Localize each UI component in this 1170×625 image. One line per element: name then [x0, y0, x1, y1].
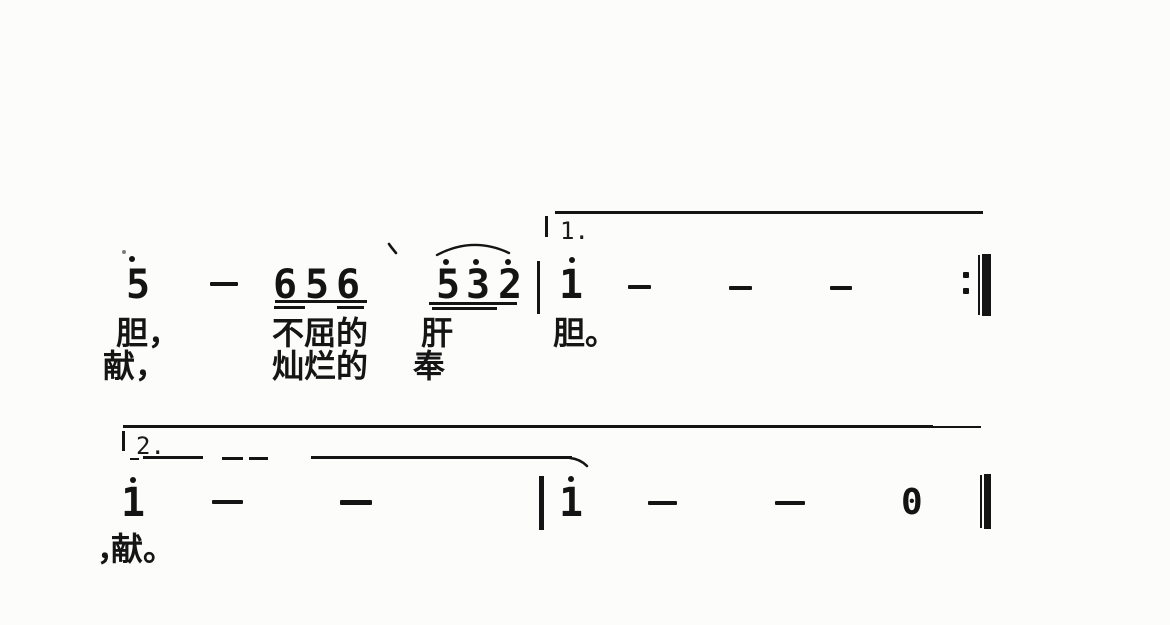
- note-digit: 5: [126, 265, 150, 305]
- duration-dash: [212, 500, 243, 504]
- barline: [537, 261, 540, 314]
- volta-2-line-seg: [249, 457, 268, 460]
- volta-2-line-seg: [130, 458, 139, 460]
- duration-dash: [729, 286, 752, 290]
- sheet-music-page: 1. 5 6 5 6 5 3 2 1 胆， 不屈的 肝 胆。 献， 灿烂的 奉: [0, 0, 1170, 625]
- volta-2-tick: [122, 431, 125, 451]
- duration-dash: [775, 501, 805, 505]
- note-digit: 1: [559, 265, 583, 305]
- lyric-word: 胆，: [116, 317, 180, 349]
- ink-speck: [122, 250, 126, 254]
- beam-line: [337, 306, 364, 309]
- duration-dash: [628, 285, 651, 289]
- repeat-dot: [963, 288, 969, 294]
- lyric-word: 胆。: [553, 317, 617, 349]
- note-digit: 3: [466, 265, 490, 305]
- duration-dash: [830, 286, 852, 290]
- volta-2-line-seg: [222, 457, 243, 460]
- beam-line: [274, 306, 305, 309]
- slur-arc: [433, 235, 513, 259]
- note-digit: 1: [121, 483, 145, 523]
- beam-line: [432, 307, 497, 310]
- volta-2-label: 2.: [136, 434, 165, 458]
- barline: [539, 476, 544, 530]
- final-barline-thick: [984, 474, 991, 529]
- repeat-barline-thick: [982, 254, 991, 316]
- scan-rule-line: [123, 425, 933, 428]
- lyric-word: 奉: [413, 350, 445, 382]
- lyric-word: 献。: [111, 533, 175, 565]
- repeat-barline-thin: [978, 255, 980, 315]
- note-digit: 6: [336, 265, 360, 305]
- repeat-dot: [963, 272, 969, 278]
- rest-digit: 0: [901, 485, 923, 521]
- note-digit: 1: [559, 483, 583, 523]
- volta-2-line-seg: [143, 456, 203, 459]
- duration-dash: [340, 500, 372, 505]
- note-digit: 5: [436, 265, 460, 305]
- note-digit: 6: [273, 265, 297, 305]
- volta-2-line: [311, 456, 572, 459]
- beam-line: [429, 302, 517, 305]
- note-digit: 2: [498, 265, 522, 305]
- volta-1-tick: [545, 216, 548, 237]
- lyric-word: 不屈的: [272, 317, 368, 349]
- lyric-word: 灿烂的: [272, 350, 368, 382]
- volta-1-label: 1.: [560, 219, 589, 243]
- duration-dash: [648, 501, 677, 505]
- note-digit: 5: [305, 265, 329, 305]
- beam-line: [275, 300, 367, 303]
- lyric-word: 肝: [421, 317, 453, 349]
- volta-2-line-hook: [570, 456, 590, 468]
- volta-1-line: [555, 211, 983, 214]
- lyric-word: 献，: [103, 350, 167, 382]
- duration-dash: [210, 282, 238, 286]
- breath-mark-icon: [388, 243, 399, 255]
- scan-rule-line-thin: [931, 426, 981, 428]
- final-barline-thin: [980, 475, 982, 528]
